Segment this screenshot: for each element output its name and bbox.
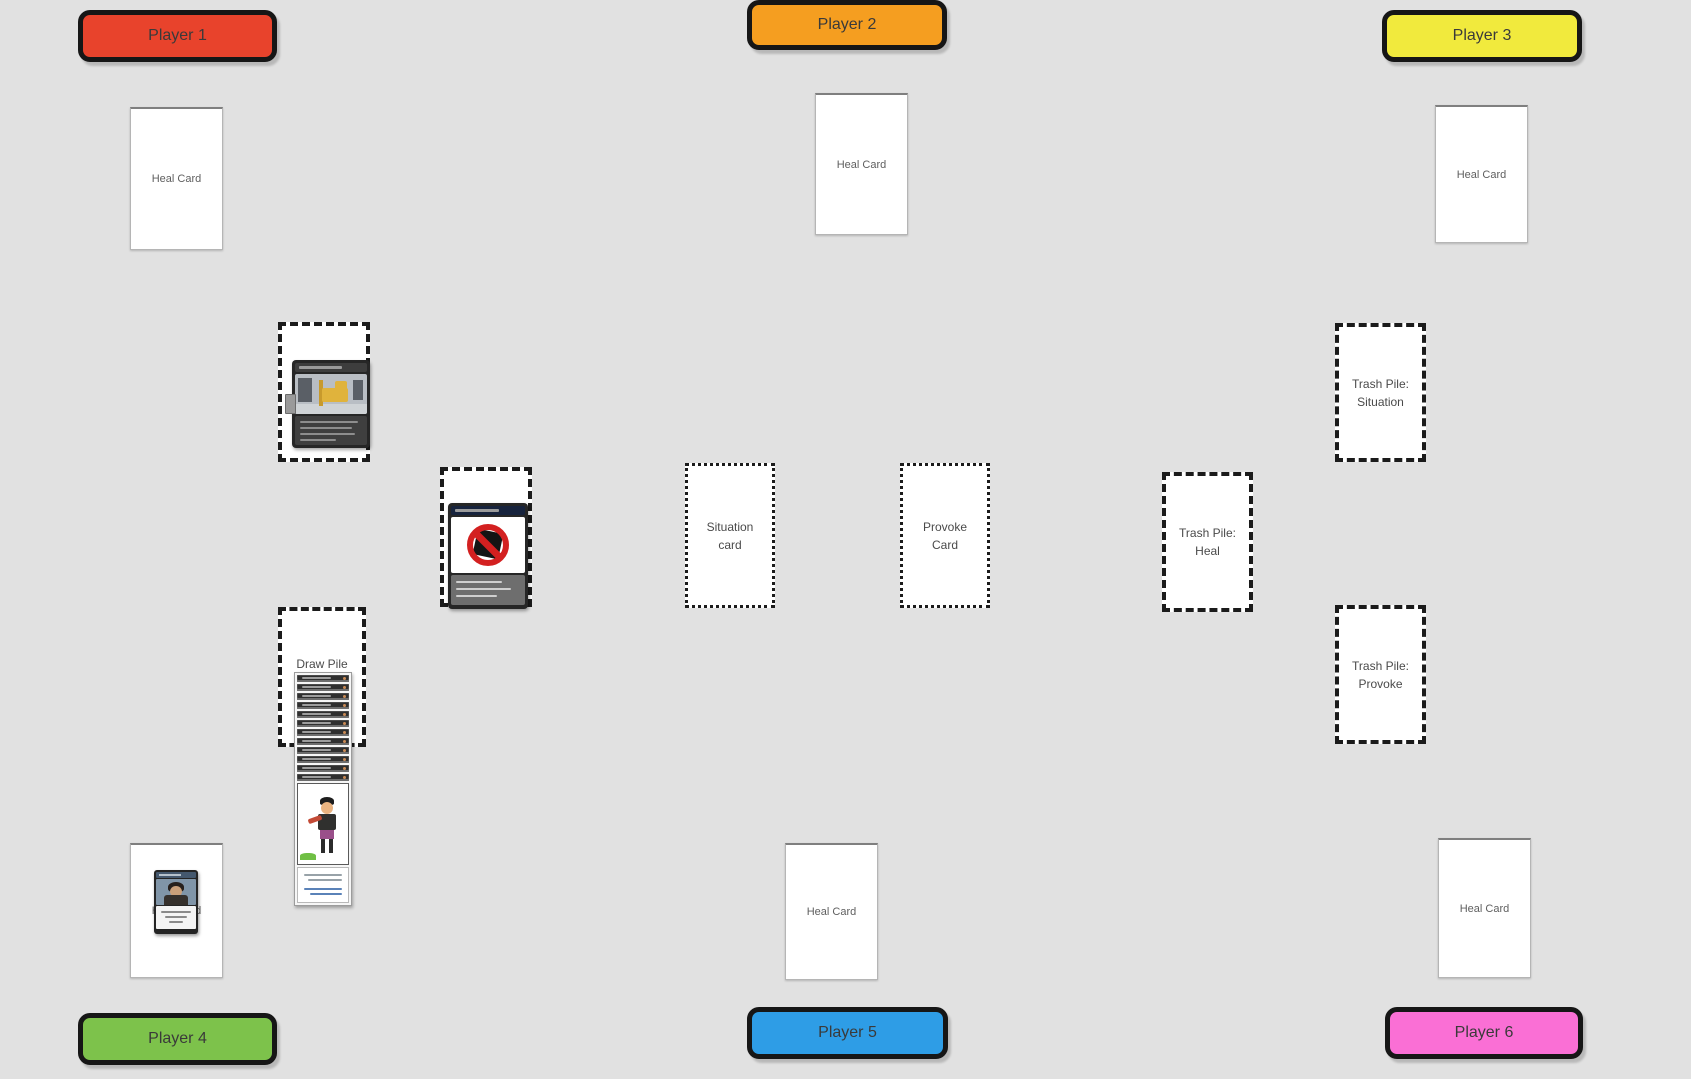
stacked-card-edge <box>297 675 349 682</box>
stacked-card-edge <box>297 738 349 745</box>
trash-pile-provoke-label: Trash Pile: Provoke <box>1352 657 1409 693</box>
heal-card-label: Heal Card <box>1460 903 1510 915</box>
zone-trash-pile-situation[interactable]: Trash Pile: Situation <box>1335 323 1426 462</box>
stacked-card-edge <box>297 693 349 700</box>
stacked-card-edge <box>297 774 349 781</box>
stacked-card-edge <box>297 729 349 736</box>
mini-card-player-4[interactable] <box>154 870 198 934</box>
player-1-button[interactable]: Player 1 <box>78 10 277 62</box>
heal-card-player-6[interactable]: Heal Card <box>1438 838 1531 978</box>
heal-card-player-5[interactable]: Heal Card <box>785 843 878 980</box>
player-4-button[interactable]: Player 4 <box>78 1013 277 1065</box>
heal-card-player-2[interactable]: Heal Card <box>815 93 908 235</box>
portrait-image <box>156 879 196 905</box>
card-title-bar <box>295 363 367 372</box>
zone-situation-deck[interactable]: Situation card <box>685 463 775 608</box>
player-2-label: Player 2 <box>818 16 877 34</box>
player-4-label: Player 4 <box>148 1030 207 1048</box>
revealed-card[interactable] <box>297 783 349 865</box>
draw-pile-stack[interactable] <box>294 672 352 906</box>
player-6-button[interactable]: Player 6 <box>1385 1007 1583 1059</box>
heal-card-player-1[interactable]: Heal Card <box>130 107 223 250</box>
played-provoke-card[interactable] <box>448 503 528 609</box>
stacked-card-edge <box>297 756 349 763</box>
played-situation-card[interactable] <box>292 360 370 448</box>
card-text-box <box>295 416 367 445</box>
stacked-card-edge <box>297 711 349 718</box>
stacked-card-edge <box>297 720 349 727</box>
stacked-card-edge <box>297 765 349 772</box>
draw-pile-label: Draw Pile <box>282 655 362 673</box>
stacked-card-edge <box>297 684 349 691</box>
player-5-label: Player 5 <box>818 1024 877 1042</box>
forklift-image <box>295 374 367 414</box>
player-3-label: Player 3 <box>1453 27 1512 45</box>
card-title-bar <box>451 506 525 515</box>
heal-card-label: Heal Card <box>152 173 202 185</box>
player-5-button[interactable]: Player 5 <box>747 1007 948 1059</box>
card-text-box <box>451 575 525 605</box>
heal-card-label: Heal Card <box>837 159 887 171</box>
player-3-button[interactable]: Player 3 <box>1382 10 1582 62</box>
grass-decoration <box>300 853 316 860</box>
heal-card-label: Heal Card <box>1457 169 1507 181</box>
bottom-stacked-card <box>297 867 349 903</box>
zone-trash-pile-heal[interactable]: Trash Pile: Heal <box>1162 472 1253 612</box>
trash-pile-heal-label: Trash Pile: Heal <box>1179 524 1236 560</box>
player-2-button[interactable]: Player 2 <box>747 0 947 50</box>
trash-pile-situation-label: Trash Pile: Situation <box>1352 375 1409 411</box>
stacked-card-edge <box>297 702 349 709</box>
game-board: Player 1 Player 2 Player 3 Player 4 Play… <box>0 0 1691 1079</box>
clip-decoration <box>285 394 296 414</box>
situation-deck-label: Situation card <box>707 518 754 554</box>
heal-card-label: Heal Card <box>807 906 857 918</box>
heal-card-player-3[interactable]: Heal Card <box>1435 105 1528 243</box>
card-text-box <box>156 906 196 929</box>
card-title-bar <box>156 872 196 878</box>
player-6-label: Player 6 <box>1455 1024 1514 1042</box>
player-1-label: Player 1 <box>148 27 207 45</box>
zone-trash-pile-provoke[interactable]: Trash Pile: Provoke <box>1335 605 1426 744</box>
stacked-card-edge <box>297 747 349 754</box>
no-entry-icon <box>451 517 525 573</box>
provoke-deck-label: Provoke Card <box>923 518 967 554</box>
zone-provoke-deck[interactable]: Provoke Card <box>900 463 990 608</box>
